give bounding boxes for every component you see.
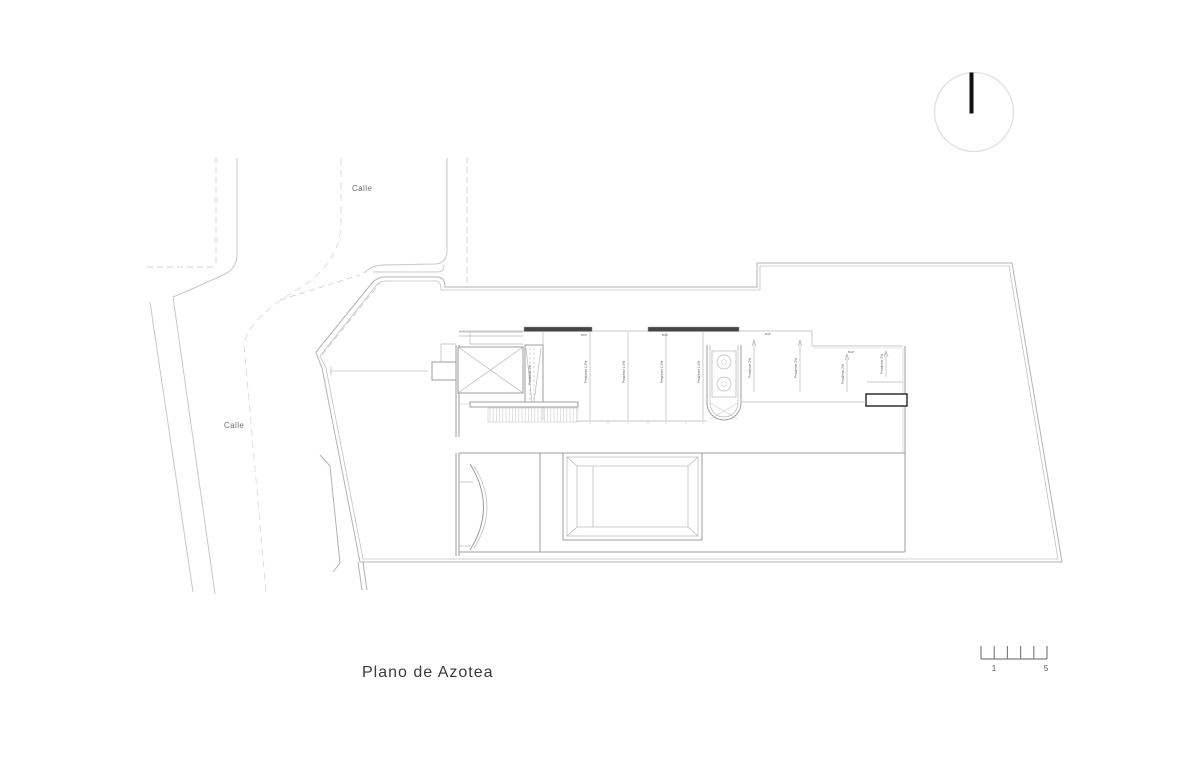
vent-fan-hub — [722, 382, 727, 387]
wall-projection-box — [432, 362, 456, 380]
plot-outline-inner — [320, 266, 1058, 559]
slope-label: Pendiente 1.5% — [660, 361, 664, 384]
canopy-arc-outer — [470, 464, 484, 550]
street-network — [147, 157, 467, 594]
canopy-struts — [459, 482, 473, 546]
slope-arrow — [845, 354, 849, 392]
canopy-arc-inner — [474, 466, 487, 548]
skylight-corner-bevels — [567, 457, 698, 536]
property-boundary — [316, 263, 1062, 590]
roof-plan-sheet: Pendiente 2% Pendiente 1.5% Pendiente 1.… — [0, 0, 1200, 777]
vent-fan-hub — [722, 360, 727, 365]
wall-connector — [441, 344, 456, 362]
roof-beam — [648, 327, 739, 332]
parcel-dashed-line-corner — [147, 157, 216, 267]
entry-line — [330, 367, 428, 375]
skylight-mid-frame — [567, 457, 698, 536]
vent-fan — [717, 377, 731, 391]
curved-canopy — [459, 464, 487, 550]
slope-label: Pendiente 2% — [528, 365, 532, 385]
slope-label: Pendiente 2% — [794, 358, 798, 378]
parapet-strip — [459, 332, 523, 344]
slope-label: Pendiente 1.5% — [622, 361, 626, 384]
terrace-outline — [459, 453, 905, 552]
street-label-top: Calle — [352, 184, 372, 193]
plot-outline-outer — [316, 263, 1062, 562]
scale-bar-ticks — [981, 646, 1047, 659]
slope-label: Pendiente 1.5% — [584, 361, 588, 384]
spiral-stair-inner-wall — [710, 345, 738, 417]
slope-label: Pendiente 2% — [841, 364, 845, 384]
street-centerline — [244, 158, 341, 592]
street-left-west-curb — [150, 302, 193, 592]
spiral-stair-cross — [710, 403, 738, 419]
boundary-stub — [358, 562, 367, 590]
gutter-ticks — [590, 421, 703, 424]
spiral-stair — [707, 345, 741, 420]
scale-bar: 1 5 — [981, 646, 1049, 673]
slope-label: Pendiente 1.5% — [697, 361, 701, 384]
plan-title: Plano de Azotea — [362, 664, 494, 681]
slope-arrow — [884, 351, 888, 377]
slope-label: Pendiente 2% — [880, 354, 884, 374]
north-indicator — [935, 73, 1014, 152]
setback-dashed-diagonal — [280, 275, 360, 300]
vent-fan — [717, 355, 731, 369]
stairs-hatch — [490, 408, 576, 422]
stair-landing-edge — [470, 402, 578, 407]
drain-label: BAP — [765, 332, 771, 336]
fan-housing — [712, 351, 736, 397]
roof-edge-top — [459, 331, 903, 346]
drain-label: BAP — [662, 333, 668, 337]
roof-plan-drawing: Pendiente 2% Pendiente 1.5% Pendiente 1.… — [0, 0, 1200, 777]
setback-dashed-chamfer — [322, 283, 380, 355]
street-label-left: Calle — [224, 421, 244, 430]
annotations: Pendiente 2% Pendiente 1.5% Pendiente 1.… — [224, 184, 884, 681]
equipment-box — [866, 394, 907, 406]
drain-label: BAP — [848, 350, 854, 354]
slope-arrow — [752, 340, 756, 392]
boundary-notch — [320, 455, 340, 572]
roof-beam — [524, 327, 592, 332]
slope-arrow — [798, 340, 802, 392]
street-upper-east-curb — [364, 158, 447, 273]
skylight-inner-frame — [577, 466, 688, 527]
building-roof — [432, 327, 907, 556]
rooftop-skylight — [563, 453, 702, 540]
scale-label-end: 5 — [1044, 664, 1049, 673]
slope-label: Pendiente 2% — [748, 358, 752, 378]
scale-label-start: 1 — [992, 664, 997, 673]
north-circle — [935, 73, 1014, 152]
stair-run-outline — [488, 408, 578, 422]
north-needle — [970, 73, 974, 114]
street-corner-inner-line — [373, 265, 444, 272]
street-upper-west-curb — [173, 158, 237, 594]
drain-label: BAP — [581, 333, 587, 337]
